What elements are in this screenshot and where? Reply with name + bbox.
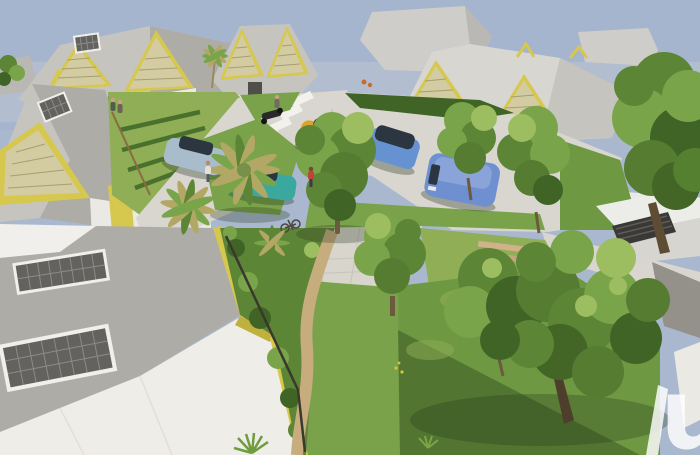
canopy <box>471 105 497 131</box>
canopy <box>614 66 654 106</box>
canopy <box>374 258 410 294</box>
canopy-highlight <box>609 277 627 295</box>
render-canvas: u <box>0 0 700 455</box>
person-head <box>206 161 211 166</box>
canopy-highlight <box>482 258 502 278</box>
canopy <box>9 65 25 81</box>
watermark-letter: u <box>660 358 700 455</box>
person-torso <box>111 102 116 111</box>
canopy <box>626 278 670 322</box>
person-torso <box>205 166 211 175</box>
canopy <box>395 219 421 245</box>
canopy <box>596 238 636 278</box>
planter-orange-2 <box>368 83 372 87</box>
person-torso <box>275 99 280 108</box>
canopy <box>342 112 374 144</box>
canopy <box>295 125 325 155</box>
flower <box>394 366 397 369</box>
person-torso <box>308 171 314 180</box>
canopy <box>550 230 594 274</box>
canopy <box>533 175 563 205</box>
person-head <box>275 95 279 99</box>
canopy <box>454 142 486 174</box>
flower <box>400 370 403 373</box>
person-legs <box>207 174 210 182</box>
canopy <box>508 114 536 142</box>
person-legs <box>310 179 313 187</box>
scene-svg: u <box>0 0 700 455</box>
lawn-highlight-2 <box>406 340 454 360</box>
person-head <box>309 167 314 172</box>
canopy <box>516 242 556 282</box>
person-porch-2 <box>118 100 123 113</box>
canopy <box>480 320 520 360</box>
canopy <box>365 213 391 239</box>
palm-core <box>237 163 251 177</box>
person-head <box>111 98 115 102</box>
person-torso <box>118 104 123 113</box>
person-porch-1 <box>111 98 116 111</box>
person-head <box>118 100 122 104</box>
tree-trunk <box>390 296 395 316</box>
planter-orange-1 <box>362 80 367 85</box>
solar-panel-house-2 <box>73 32 101 53</box>
shrub <box>223 226 237 240</box>
person-crosswalk <box>275 95 280 108</box>
canopy <box>324 189 356 221</box>
canopy <box>572 346 624 398</box>
canopy-highlight <box>575 295 597 317</box>
flower <box>398 362 401 365</box>
palm-shadow <box>210 207 290 223</box>
palm-small-plaza <box>254 225 290 261</box>
trees-shadow <box>410 394 670 446</box>
